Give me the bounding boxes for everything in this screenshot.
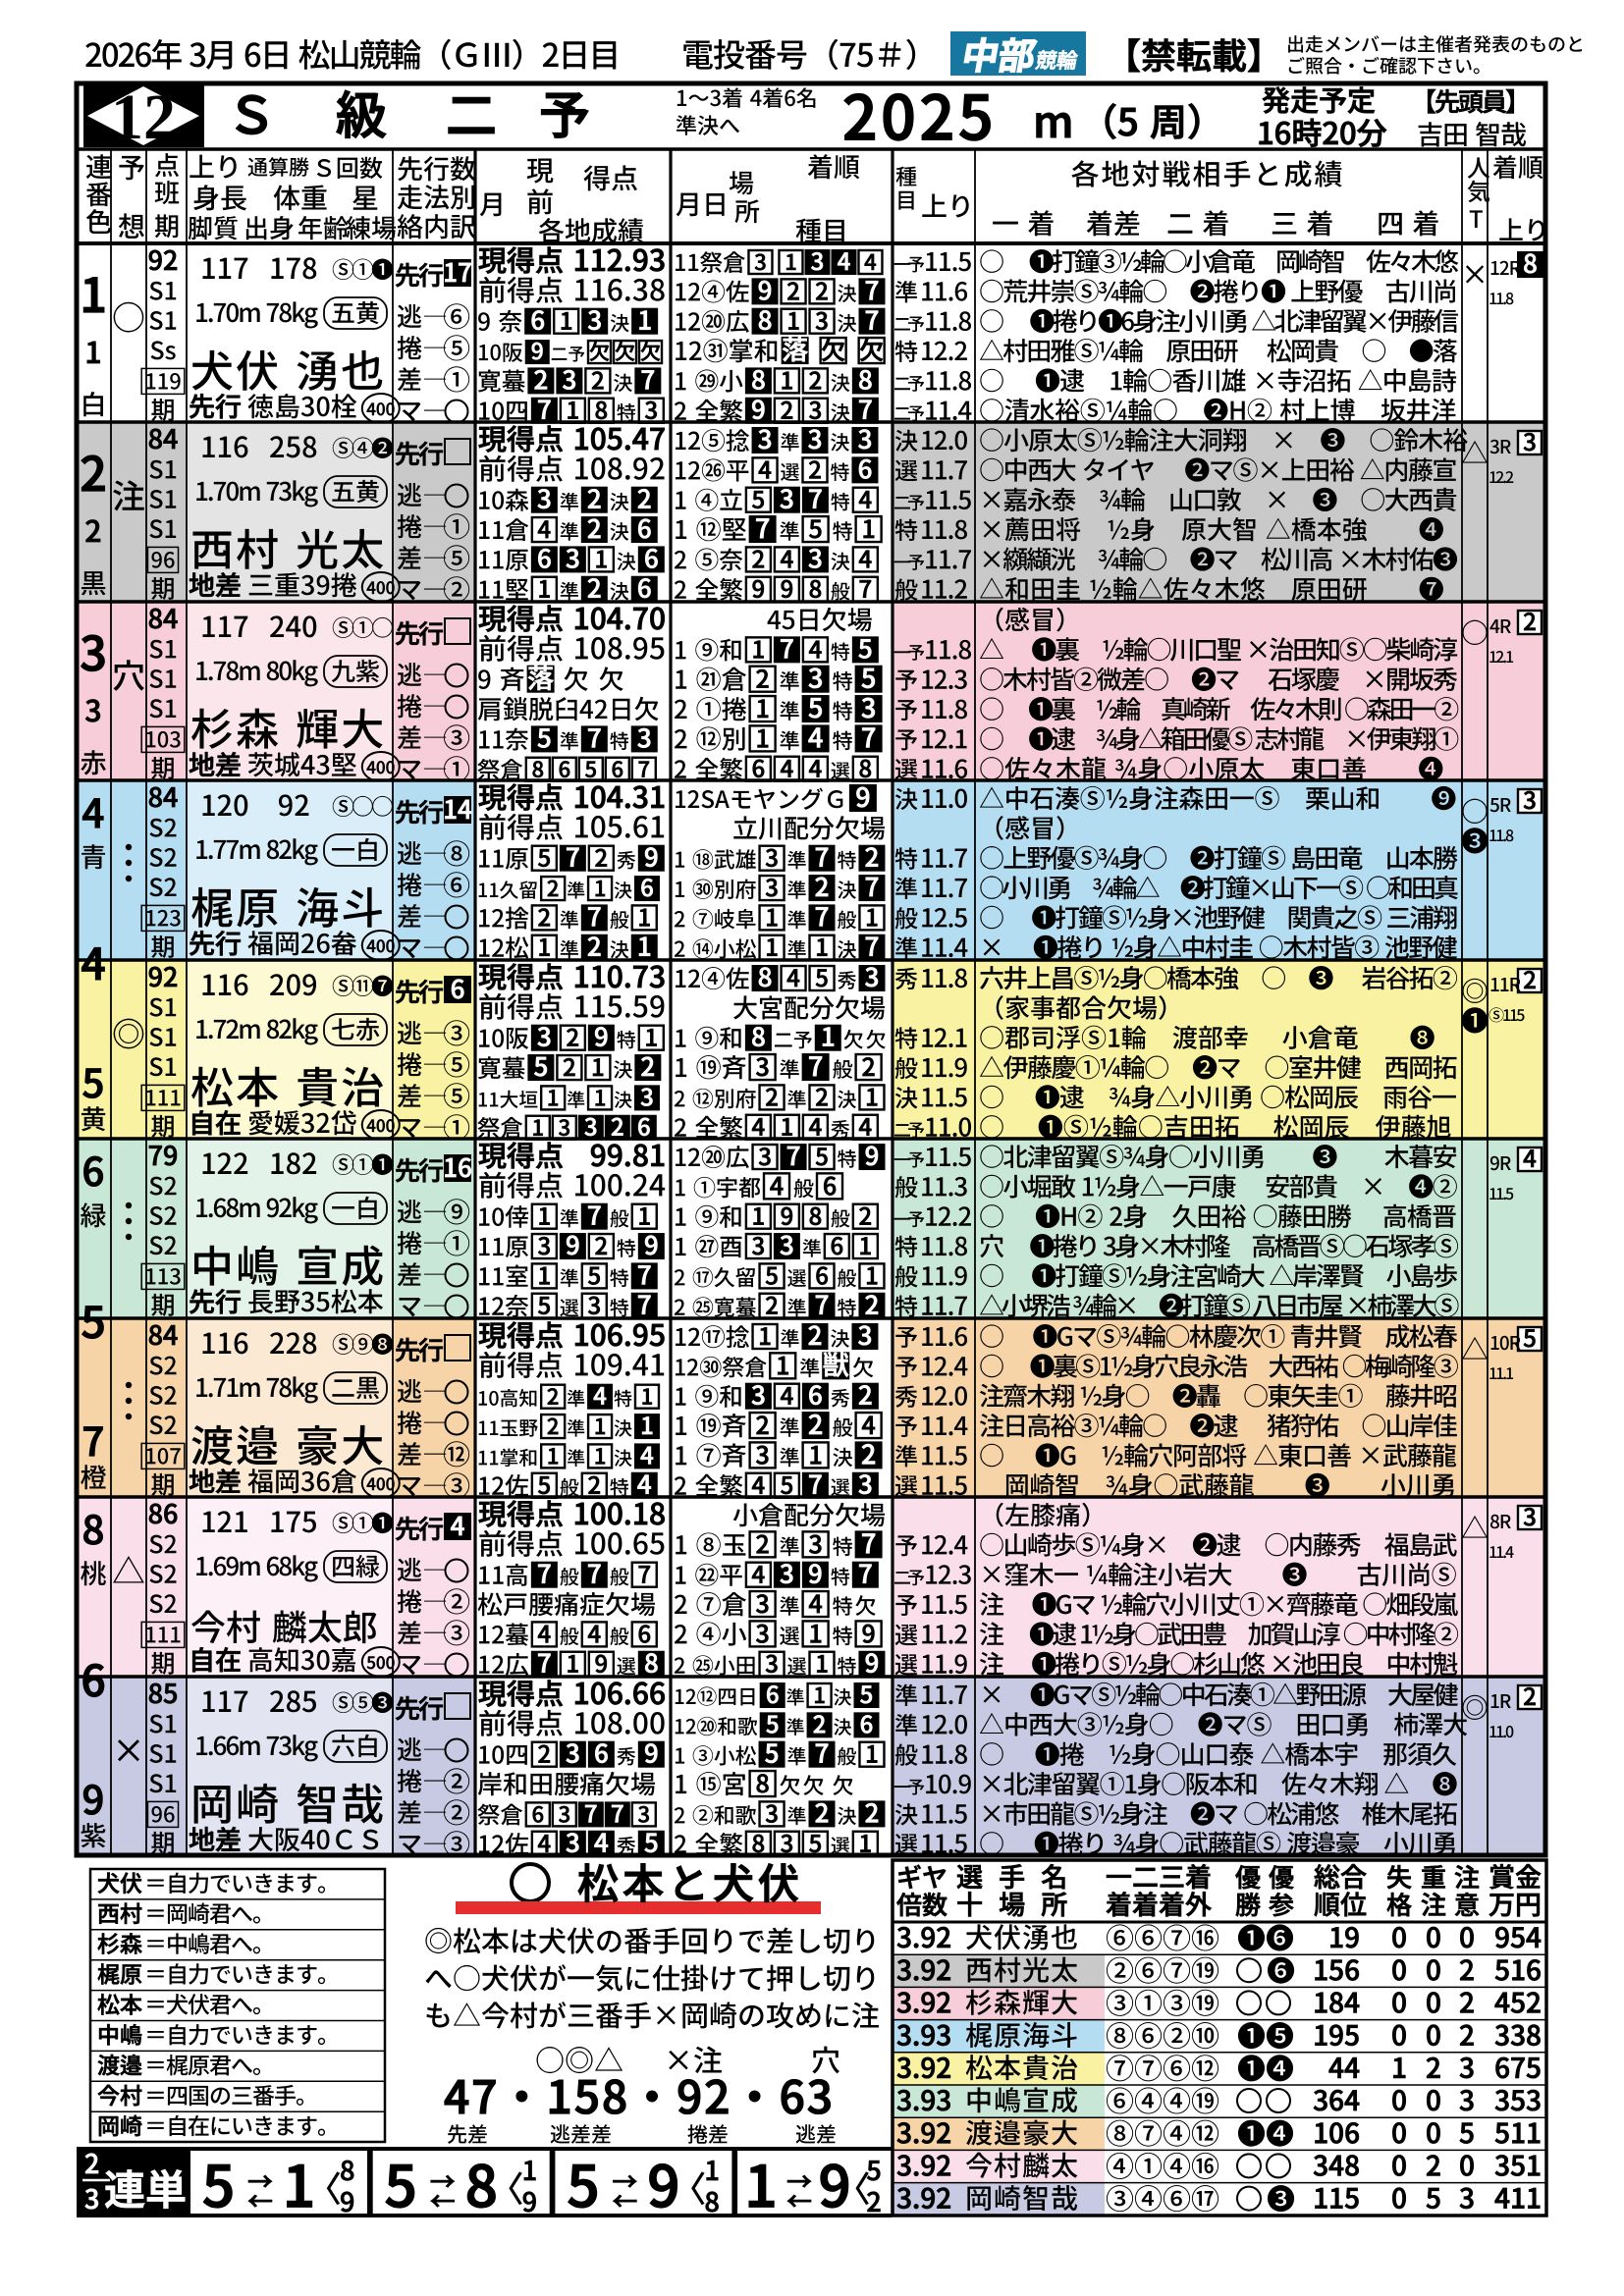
svg-text:12: 12 <box>111 81 176 153</box>
